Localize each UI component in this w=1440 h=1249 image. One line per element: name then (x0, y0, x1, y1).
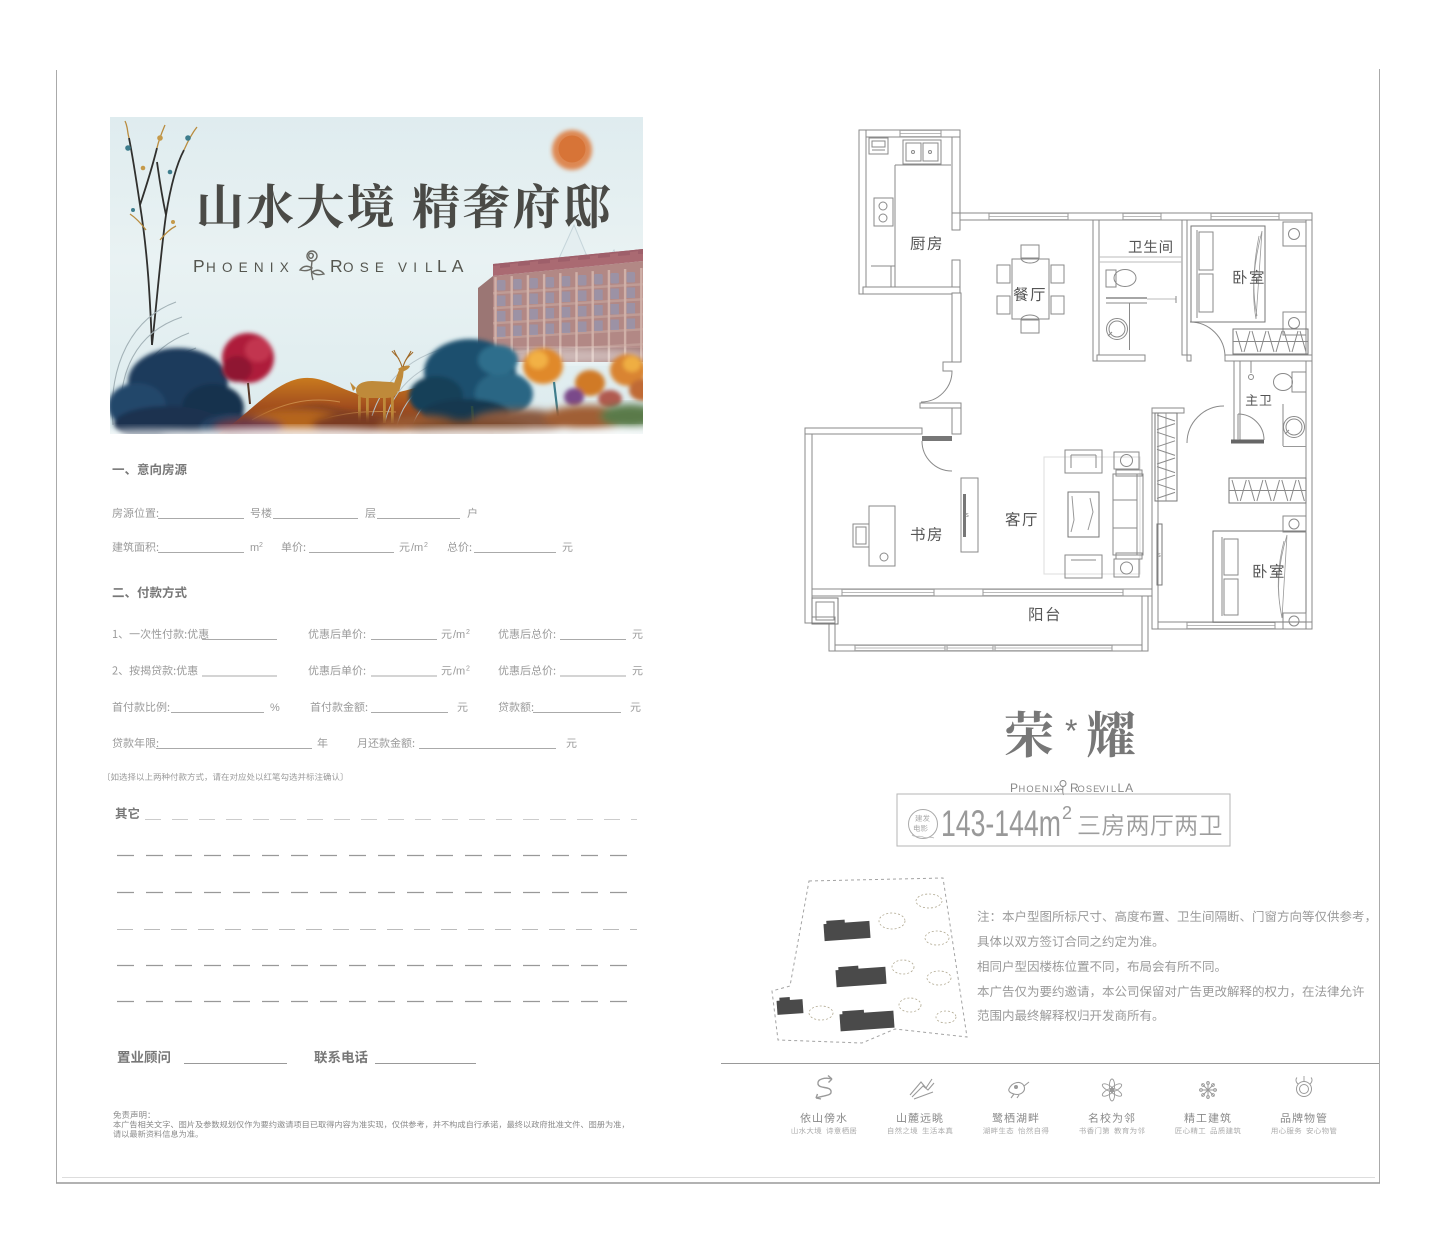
svg-text:LA: LA (1118, 781, 1135, 795)
svg-text:2: 2 (259, 542, 263, 549)
svg-text:%: % (270, 702, 280, 714)
svg-text:/m: /m (453, 666, 465, 678)
svg-text:/m: /m (453, 629, 465, 641)
svg-text:2: 2 (1062, 803, 1072, 823)
svg-text:L: L (425, 260, 435, 275)
svg-text:LA: LA (437, 256, 468, 276)
svg-text:m: m (250, 542, 259, 554)
svg-text:VI: VI (398, 260, 423, 275)
svg-text:2: 2 (466, 666, 470, 673)
svg-text:s: s (1157, 552, 1161, 559)
svg-text:2: 2 (424, 542, 428, 549)
svg-text:P: P (193, 256, 205, 276)
svg-text:OSE: OSE (343, 260, 390, 275)
svg-text:HOENIX: HOENIX (206, 260, 295, 275)
svg-text:2: 2 (466, 629, 470, 636)
svg-text:R: R (330, 256, 343, 276)
svg-text:VI: VI (1099, 784, 1110, 794)
svg-text:s: s (965, 512, 969, 519)
svg-text:OSE: OSE (1078, 784, 1101, 794)
svg-text:HOENIX: HOENIX (1019, 784, 1061, 794)
svg-text:P: P (1010, 781, 1018, 795)
svg-text:/m: /m (411, 542, 423, 554)
svg-text:143-144m: 143-144m (941, 803, 1061, 844)
svg-text:*: * (1065, 713, 1077, 749)
svg-text:L: L (1111, 784, 1117, 794)
